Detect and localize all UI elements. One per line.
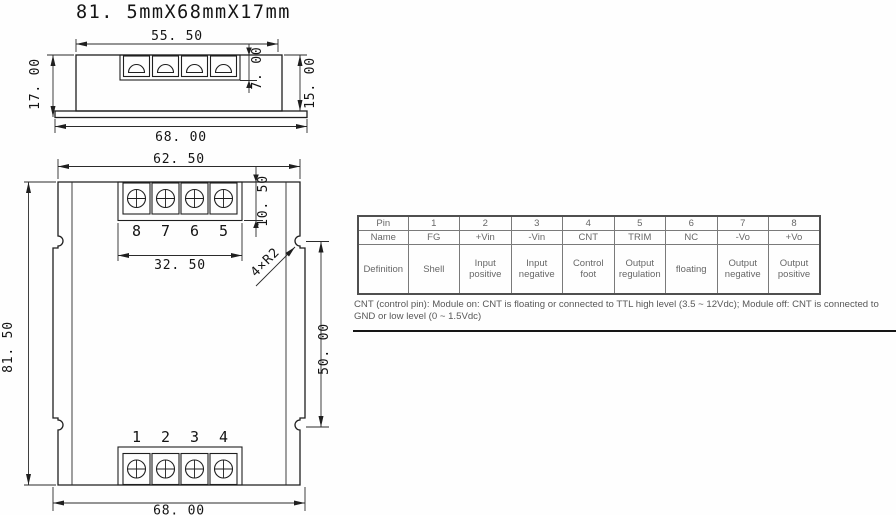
pin-label-6: 6 — [190, 222, 199, 240]
dim-15-00: 15. 00 — [303, 57, 318, 109]
pin-definition: Output regulation — [614, 245, 666, 295]
dim-55-50: 55. 50 — [151, 29, 203, 44]
table-row-pin: Pin 1 2 3 4 5 6 7 8 — [358, 216, 820, 231]
side-base-plate — [55, 111, 307, 118]
pin-definition: Shell — [408, 245, 460, 295]
pin-number: 2 — [460, 216, 512, 231]
section-divider — [353, 330, 896, 332]
side-view: 55. 50 7. 00 17. 00 15. 00 68. 00 — [28, 29, 318, 145]
dim-corner-radius: 4×R2 — [248, 245, 283, 280]
dim-50-00: 50. 00 — [317, 323, 332, 375]
pin-definition: Output positive — [769, 245, 821, 295]
pin-definition: Output negative — [717, 245, 769, 295]
pin-name: -Vin — [511, 231, 563, 245]
pin-name: NC — [666, 231, 718, 245]
pin-name: TRIM — [614, 231, 666, 245]
bottom-terminal-strip: 1 2 3 4 — [118, 428, 242, 485]
pin-definition: floating — [666, 245, 718, 295]
dim-68-00-top: 68. 00 — [153, 504, 205, 515]
row-label: Definition — [358, 245, 408, 295]
pin-label-1: 1 — [132, 428, 141, 446]
pin-label-5: 5 — [219, 222, 228, 240]
pin-name: -Vo — [717, 231, 769, 245]
cnt-control-pin-note: CNT (control pin): Module on: CNT is flo… — [354, 299, 894, 324]
pin-number: 8 — [769, 216, 821, 231]
terminal-dome — [215, 65, 232, 73]
pin-label-2: 2 — [161, 428, 170, 446]
datasheet-page: { "title": "81. 5mmX68mmX17mm", "side_vi… — [0, 0, 896, 515]
table-row-name: Name FG +Vin -Vin CNT TRIM NC -Vo +Vo — [358, 231, 820, 245]
pin-label-7: 7 — [161, 222, 170, 240]
mechanical-drawing: 55. 50 7. 00 17. 00 15. 00 68. 00 — [0, 0, 350, 515]
pin-definition: Input positive — [460, 245, 512, 295]
side-view-dimensions: 55. 50 7. 00 17. 00 15. 00 68. 00 — [28, 29, 318, 145]
screw-terminals-bottom — [128, 460, 233, 478]
screw-terminals-top — [128, 190, 233, 208]
side-view-terminal-block — [120, 55, 240, 80]
dim-32-50: 32. 50 — [154, 258, 206, 273]
dim-81-50: 81. 50 — [1, 321, 16, 373]
pin-number: 3 — [511, 216, 563, 231]
pin-label-8: 8 — [132, 222, 141, 240]
dim-62-50: 62. 50 — [153, 152, 205, 167]
terminal-dome — [157, 65, 174, 73]
pin-definition: Control foot — [563, 245, 615, 295]
table-row-definition: Definition Shell Input positive Input ne… — [358, 245, 820, 295]
pin-label-4: 4 — [219, 428, 228, 446]
pin-number: 1 — [408, 216, 460, 231]
dim-17-00: 17. 00 — [28, 58, 43, 110]
dim-10-50: 10. 50 — [256, 175, 271, 227]
top-view: 8 7 6 5 1 2 3 4 — [1, 152, 332, 515]
pin-definition: Input negative — [511, 245, 563, 295]
terminal-dome — [128, 65, 145, 73]
dim-68-00-side: 68. 00 — [155, 130, 207, 145]
terminal-dome — [186, 65, 203, 73]
row-label: Name — [358, 231, 408, 245]
pin-label-3: 3 — [190, 428, 199, 446]
pin-name: +Vin — [460, 231, 512, 245]
pin-number: 7 — [717, 216, 769, 231]
top-terminal-strip: 8 7 6 5 — [118, 182, 242, 240]
pin-name: +Vo — [769, 231, 821, 245]
pin-name: FG — [408, 231, 460, 245]
pin-definition-table: Pin 1 2 3 4 5 6 7 8 Name FG +Vin -Vin CN… — [357, 215, 821, 295]
pin-name: CNT — [563, 231, 615, 245]
pin-number: 6 — [666, 216, 718, 231]
pin-number: 5 — [614, 216, 666, 231]
dim-7-00: 7. 00 — [250, 46, 265, 89]
row-label: Pin — [358, 216, 408, 231]
pin-number: 4 — [563, 216, 615, 231]
